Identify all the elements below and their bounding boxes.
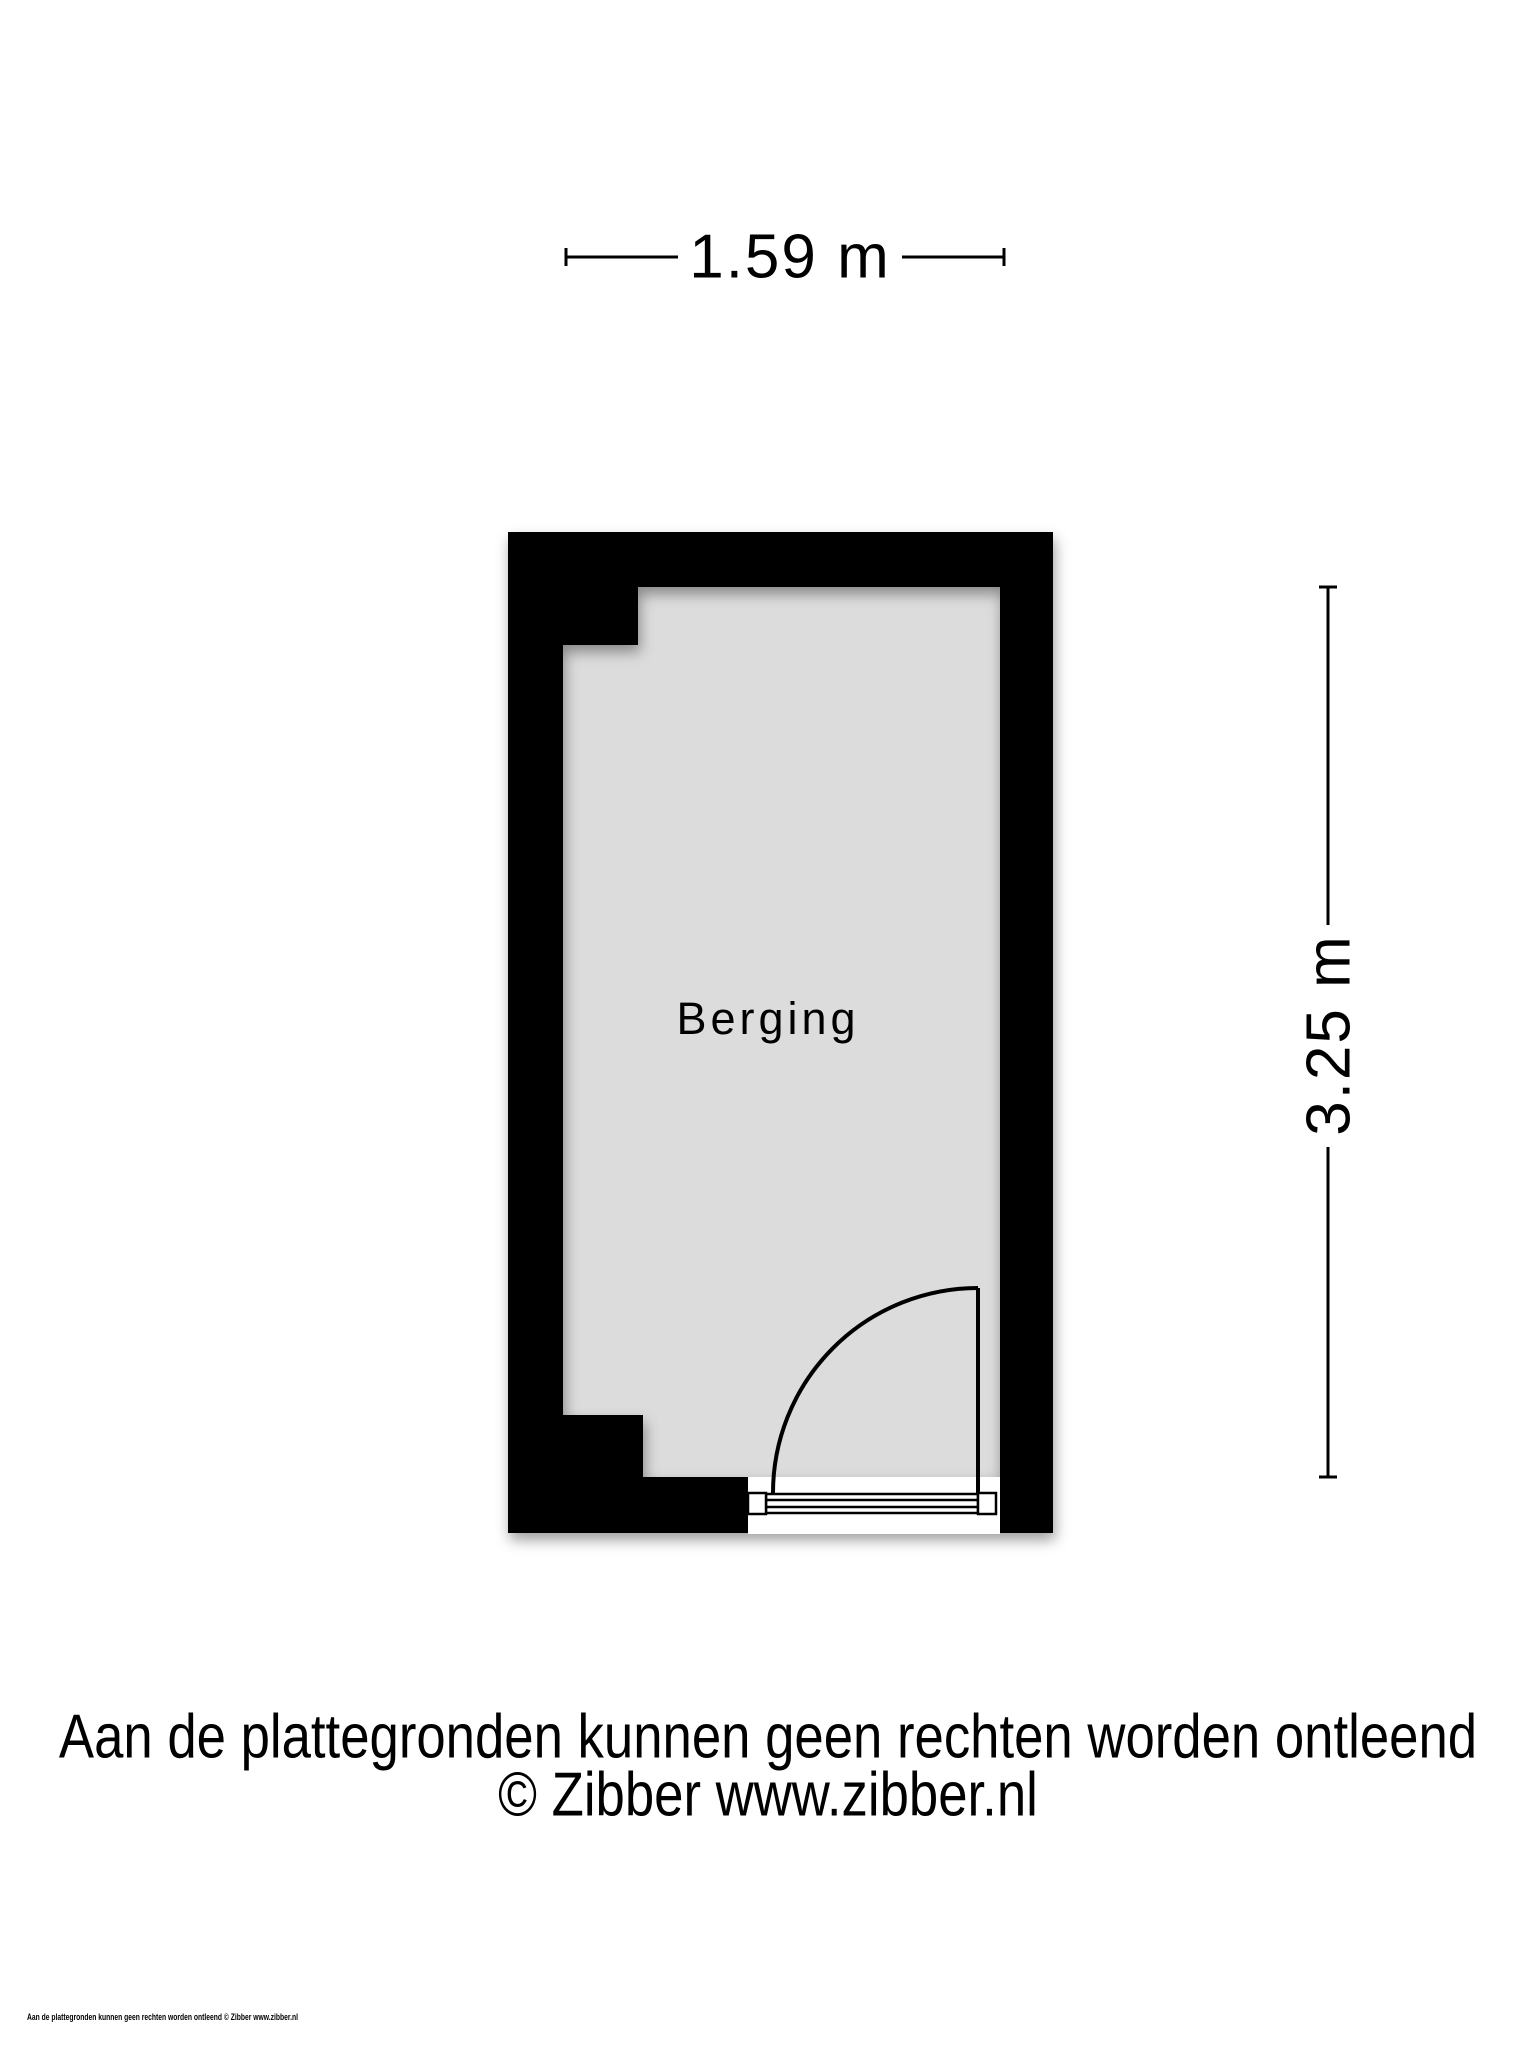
fine-print: Aan de plattegronden kunnen geen rechten… — [27, 2012, 298, 2022]
door-sill — [748, 1493, 996, 1514]
width-dimension-label: 1.59 m — [689, 222, 891, 293]
height-dimension-label: 3.25 m — [1294, 934, 1365, 1136]
door-jamb-right — [978, 1493, 996, 1514]
door-jamb-left — [748, 1493, 766, 1514]
room-label: Berging — [676, 993, 859, 1045]
disclaimer-line-2: © Zibber www.zibber.nl — [498, 1760, 1038, 1831]
floorplan-page: 1.59 m 3.25 m Berging Aan de plattegrond… — [0, 0, 1536, 2048]
